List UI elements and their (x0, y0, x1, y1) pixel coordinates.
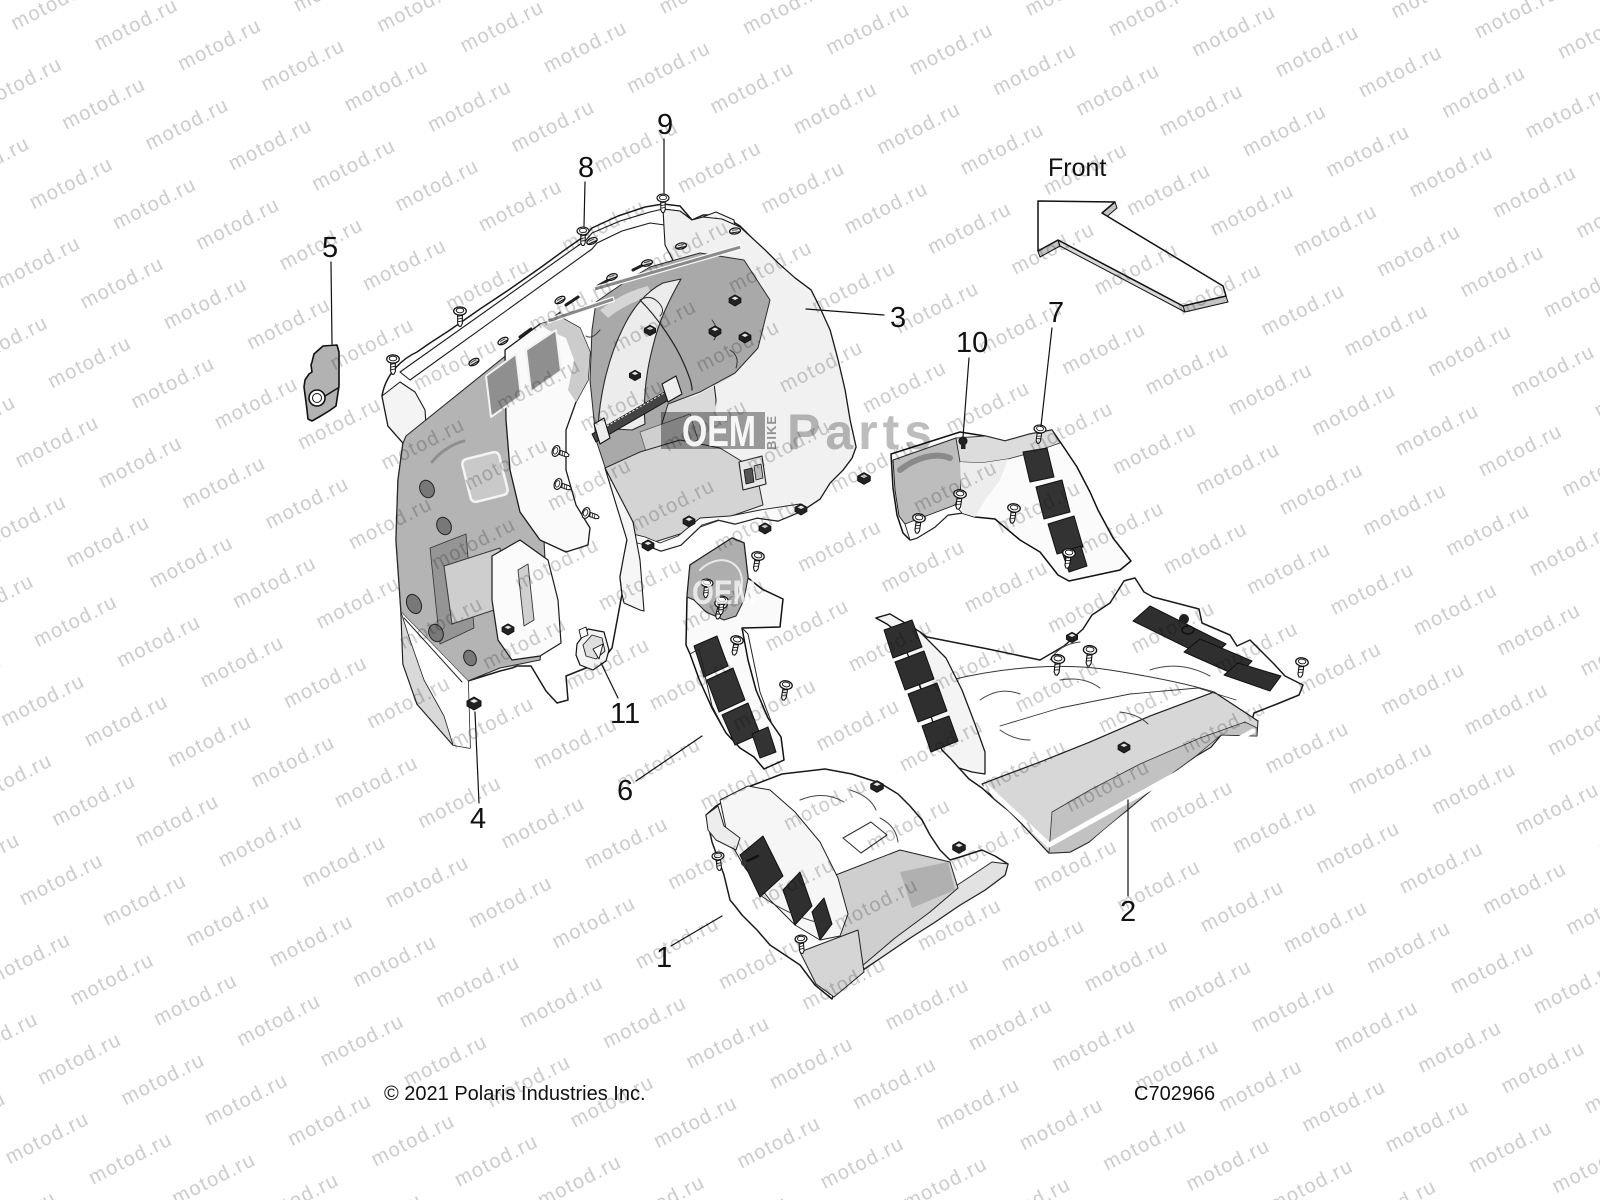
svg-text:OEM: OEM (682, 407, 756, 456)
svg-text:Parts: Parts (787, 404, 937, 460)
svg-text:OEM: OEM (692, 574, 756, 612)
svg-text:BIKE: BIKE (764, 415, 779, 450)
